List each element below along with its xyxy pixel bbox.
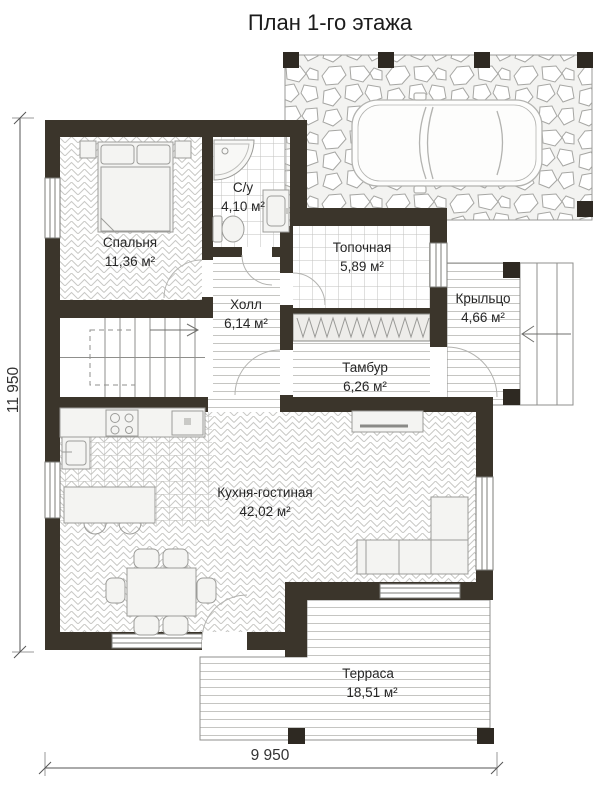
floor-plan-page: План 1-го этажа Терраса 18,51 м² (0, 0, 610, 789)
floor-plan-drawing: План 1-го этажа Терраса 18,51 м² (0, 0, 610, 789)
oven (172, 411, 203, 435)
terrace-area: 18,51 м² (346, 685, 398, 700)
post-icon (503, 262, 520, 278)
wall-segment (280, 397, 493, 412)
kitchen-sink (62, 437, 90, 469)
cooktop (106, 410, 138, 436)
bedroom-area: 11,36 м² (105, 254, 156, 269)
tv-console (352, 411, 423, 432)
hall-kitchen-opening (208, 397, 280, 412)
dining-chair (163, 616, 188, 635)
post-icon (577, 201, 593, 217)
door-opening (280, 273, 293, 305)
dining-chair (106, 578, 125, 603)
terrace-door-opening (202, 632, 247, 650)
wall-segment (45, 300, 202, 318)
dining-chair (197, 578, 216, 603)
dining-chair (134, 549, 159, 568)
nightstand (80, 141, 96, 158)
dining-chair (163, 549, 188, 568)
terrace-label: Терраса (342, 666, 394, 681)
bed (98, 142, 173, 232)
page-title: План 1-го этажа (248, 10, 413, 35)
vestibule-label: Тамбур (342, 360, 388, 375)
post-icon (378, 52, 394, 68)
dining-table (127, 568, 196, 616)
bedroom-label: Спальня (103, 235, 157, 250)
hall-label: Холл (230, 297, 262, 312)
wall-segment (290, 208, 447, 226)
vanity-sink (263, 190, 289, 232)
wall-segment (202, 297, 213, 318)
entrance-door-opening (430, 347, 447, 397)
window-boiler (430, 243, 447, 287)
wardrobe (293, 308, 430, 341)
porch-area: 4,66 м² (461, 310, 505, 325)
post-icon (288, 728, 305, 744)
bathroom-label: С/у (233, 180, 254, 195)
hall-area: 6,14 м² (224, 316, 268, 331)
boiler-area: 5,89 м² (340, 259, 384, 274)
carport (283, 52, 593, 220)
post-icon (283, 52, 299, 68)
width-dimension-label: 9 950 (251, 747, 290, 764)
window-bedroom (45, 178, 60, 238)
wall-segment (290, 137, 307, 212)
wall-segment (45, 120, 307, 137)
porch-deck (447, 263, 520, 405)
nightstand (175, 141, 191, 158)
porch: Крыльцо 4,66 м² (447, 262, 573, 405)
post-icon (474, 52, 490, 68)
post-icon (577, 52, 593, 68)
post-icon (503, 389, 520, 405)
kitchen-living-label: Кухня-гостиная (217, 485, 313, 500)
vestibule-area: 6,26 м² (343, 379, 387, 394)
window-living-right (476, 477, 493, 570)
kitchen-island (64, 487, 155, 523)
door-opening (280, 350, 293, 395)
window-kitchen-left (45, 462, 60, 518)
window-living-bottom (380, 584, 460, 598)
kitchen-living-area: 42,02 м² (239, 504, 291, 519)
bathroom-area: 4,10 м² (221, 199, 265, 214)
post-icon (477, 728, 494, 744)
porch-label: Крыльцо (455, 291, 510, 306)
boiler-label: Топочная (333, 240, 392, 255)
door-opening (202, 260, 213, 297)
height-dimension-label: 11 950 (5, 366, 22, 413)
dining-chair (134, 616, 159, 635)
car (352, 93, 542, 193)
door-opening (242, 247, 272, 257)
window-kitchen-bottom (112, 634, 202, 648)
toilet (213, 216, 244, 242)
wall-segment (202, 137, 213, 260)
